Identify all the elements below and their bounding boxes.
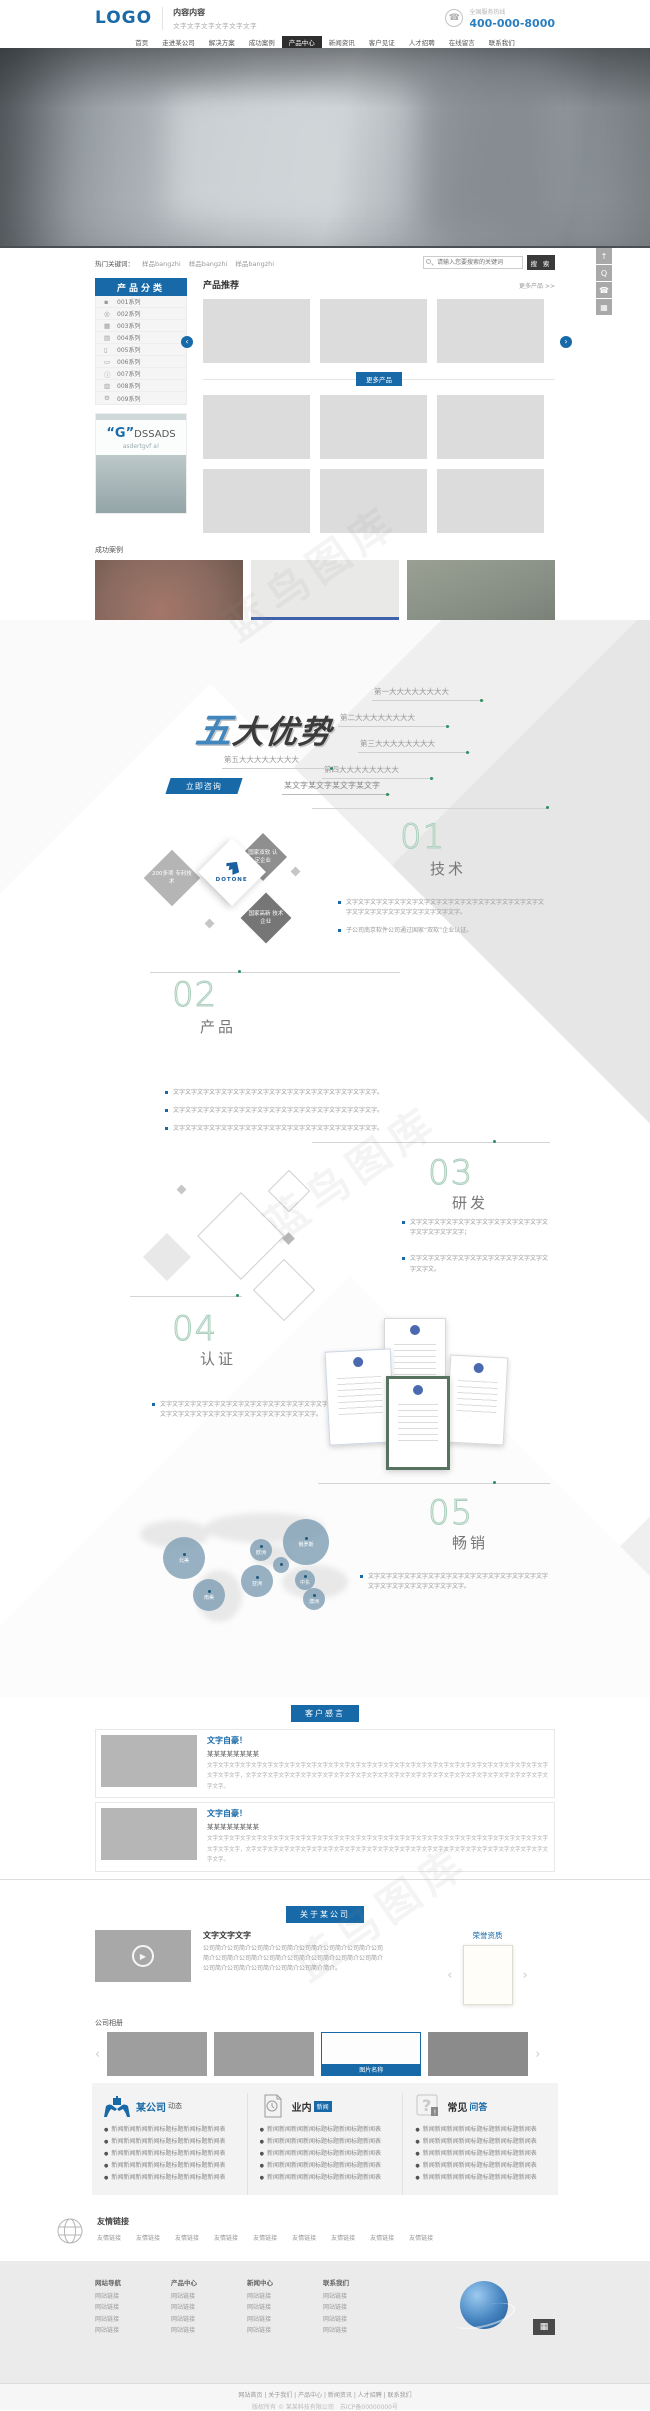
news-column-title: 某公司 [136,2099,166,2114]
green-dot [493,1481,496,1484]
category-icon: ⚙ [104,394,113,402]
region-bubble: 俄罗斯 [283,1519,329,1565]
section-bullet: 文字文字文字文字文字文字文字文字文字文字文字文字文字文字文字文字文字文字文字文字… [338,898,546,918]
product-image[interactable] [437,299,544,363]
search-input[interactable] [423,256,523,269]
region-label: 俄罗斯 [298,1541,313,1548]
certificate-image [386,1376,450,1470]
section-bullet: 文字文字文字文字文字文字文字文字文字文字文字文字文字文字文字文字文字。 [165,1088,410,1098]
news-list-item[interactable]: ●新闻新闻新闻新闻标题标题新闻标题新闻表 [104,2148,235,2160]
products-section: 热门关键词： 样品bangzhi样品bangzhi样品bangzhi 搜 索 产… [0,248,650,620]
news-list-item[interactable]: ●新闻新闻新闻新闻标题标题新闻标题新闻表 [415,2160,546,2172]
friendly-link[interactable]: 友情链接 [136,2233,160,2242]
friendly-link[interactable]: 友情链接 [175,2233,199,2242]
footer-link[interactable]: 网站链接 [95,2302,155,2313]
footer-nav-column: 联系我们 网站链接网站链接网站链接网站链接 [323,2277,383,2337]
news-list-item[interactable]: ●新闻新闻新闻新闻标题标题新闻标题新闻表 [415,2172,546,2184]
footer-column-heading: 网站导航 [95,2277,155,2287]
cases-title: 成功案例 [95,545,555,555]
qq-button[interactable]: Q [596,265,612,281]
category-icon: ▤ [104,334,113,342]
header-slogan: 内容内容 文字文字文字文字文字文字 [162,7,257,30]
nav-item[interactable]: 产品中心 [282,36,322,48]
advantage-item: 第四大大大大大大大大 [322,764,434,779]
carousel-prev-button[interactable]: ‹ [181,336,193,348]
bubble-dot [304,1575,307,1578]
nav-item[interactable]: 成功案例 [242,36,282,48]
footer-link[interactable]: 网站链接 [171,2314,231,2325]
section-title: 畅销 [452,1532,488,1553]
testimonial-card[interactable]: 文字自豪！ 某某某某某某某某 文字文字文字文字文字文字文字文字文字文字文字文字文… [95,1729,555,1798]
section-number: 01 [400,820,445,854]
product-image[interactable] [320,299,427,363]
testimonial-title: 文字自豪！ [207,1808,549,1819]
hotline-number: 400-000-8000 [469,17,555,30]
category-label: 002系列 [117,309,140,318]
friendly-links-title: 友情链接 [97,2216,433,2227]
friendly-link[interactable]: 友情链接 [331,2233,355,2242]
footer-link[interactable]: 网站链接 [171,2325,231,2336]
news-list-item[interactable]: ●新闻新闻新闻新闻标题标题新闻标题新闻表 [260,2136,391,2148]
footer-link[interactable]: 网站链接 [247,2314,307,2325]
bottom-bar: 网站首页 | 关于我们 | 产品中心 | 新闻资讯 | 人才招聘 | 联系我们 … [0,2383,650,2410]
advantage-item: 第二大大大大大大大大 [338,712,450,727]
region-bubble: 亚洲 [241,1565,273,1597]
play-icon: ▶ [132,1945,154,1967]
section-bullet: 文字文字文字文字文字文字文字文字文字文字文字文字文字文字文字文字文字。 [165,1106,410,1116]
qrcode-button[interactable]: ▦ [596,299,612,315]
advantage-note: 某文字某文字某文字某文字 [282,780,390,795]
product-image[interactable] [320,469,427,533]
honor-prev-button[interactable]: ‹ [447,1968,452,1983]
footer-nav-column: 新闻中心 网站链接网站链接网站链接网站链接 [247,2277,307,2337]
friendly-link[interactable]: 友情链接 [214,2233,238,2242]
green-dot [236,1294,239,1297]
testimonial-body: 文字文字文字文字文字文字文字文字文字文字文字文字文字文字文字文字文字文字文字文字… [207,1834,549,1865]
globe-icon [55,2216,85,2246]
nav-item[interactable]: 走进某公司 [155,36,202,48]
consult-now-button[interactable]: 立即咨询 [165,778,242,794]
about-section: 关于某公司 ▶ 文字文字文字 公司简介公司简介公司简介公司简介公司简介公司简介公… [0,1906,650,2014]
section-bullet: 文字文字文字文字文字文字文字文字文字文字文字文字文字文字文字文字文字。 [165,1124,410,1134]
product-image[interactable] [203,395,310,459]
footer-link[interactable]: 网站链接 [323,2314,383,2325]
news-section: 某公司 动态 ●新闻新闻新闻新闻标题标题新闻标题新闻表●新闻新闻新闻新闻标题标题… [0,2083,650,2204]
banner-blur-shape [420,63,550,233]
category-label: 001系列 [117,297,140,306]
bubble-dot [183,1553,186,1556]
album-thumbnail[interactable] [428,2032,528,2076]
section-title: 产品 [200,1016,236,1037]
nav-item[interactable]: 客户见证 [362,36,402,48]
certificate-image [325,1348,396,1445]
hotline-label: 全国服务热线 [469,7,555,16]
bubble-dot [280,1563,283,1566]
nav-item[interactable]: 解决方案 [202,36,242,48]
carousel-next-button[interactable]: › [560,336,572,348]
product-image[interactable] [437,469,544,533]
footer-link[interactable]: 网站链接 [323,2302,383,2313]
footer-link[interactable]: 网站链接 [171,2302,231,2313]
hands-gift-icon [104,2093,130,2119]
section-title: 认证 [200,1348,236,1369]
banner-blur-shape [170,98,340,218]
green-dot [238,970,241,973]
footer-nav-column: 产品中心 网站链接网站链接网站链接网站链接 [171,2277,231,2337]
qr-code-icon[interactable]: ▦ [533,2319,555,2335]
section-number: 03 [428,1156,473,1190]
nav-item[interactable]: 在线留言 [442,36,482,48]
footer-nav-column: 网站导航 网站链接网站链接网站链接网站链接 [95,2277,155,2337]
keyword-link[interactable]: 样品bangzhi [142,260,181,268]
about-tab-button[interactable]: 关于某公司 [286,1906,364,1923]
news-column-title: 业内 [292,2099,312,2114]
testimonial-body: 文字文字文字文字文字文字文字文字文字文字文字文字文字文字文字文字文字文字文字文字… [207,1761,549,1792]
document-clock-icon [260,2093,286,2119]
search-button[interactable]: 搜 索 [527,255,555,270]
friendly-links-section: 友情链接 友情链接友情链接友情链接友情链接友情链接友情链接友情链接友情链接友情链… [0,2204,650,2261]
hotline-block: ☎ 全国服务热线 400-000-8000 [445,7,555,30]
search-icon [426,259,431,264]
section-divider [150,972,400,973]
green-dot [546,806,549,809]
news-column-subtitle: 问答 [469,2100,487,2113]
sidebar-category-item[interactable]: ▤ 004系列 [96,332,186,344]
testimonial-image [101,1735,197,1787]
product-image[interactable] [203,299,310,363]
footer-link[interactable]: 网站链接 [95,2291,155,2302]
about-text: 公司简介公司简介公司简介公司简介公司简介公司简介公司简介公司简介公司简介公司简介… [203,1944,388,1974]
section-number: 02 [172,978,217,1012]
phone-button[interactable]: ☎ [596,282,612,298]
album-thumbnail[interactable] [107,2032,207,2076]
category-icon: ⓘ [104,369,113,379]
footer-column-heading: 产品中心 [171,2277,231,2287]
advantage-item: 第五大大大大大大大大 [222,754,334,769]
phone-icon: ☎ [445,9,463,27]
region-bubble: 北美 [163,1537,205,1579]
product-image[interactable] [203,469,310,533]
region-label: 亚洲 [252,1580,262,1587]
hot-keywords-label: 热门关键词： [95,258,134,268]
footer-link[interactable]: 网站链接 [247,2325,307,2336]
news-list-item[interactable]: ●新闻新闻新闻新闻标题标题新闻标题新闻表 [260,2160,391,2172]
bubble-dot [260,1545,263,1548]
testimonial-subtitle: 某某某某某某某某 [207,1821,549,1831]
category-label: 006系列 [117,357,140,366]
friendly-link[interactable]: 友情链接 [409,2233,433,2242]
news-list-item[interactable]: ●新闻新闻新闻新闻标题标题新闻标题新闻表 [260,2124,391,2136]
sidebar-category-item[interactable]: ▪ 001系列 [96,296,186,308]
sidebar-category-item[interactable]: ▥ 008系列 [96,380,186,392]
news-column-subtitle: 动态 [168,2101,182,2111]
category-icon: ◎ [104,310,113,318]
category-label: 009系列 [117,394,140,403]
sidebar-category-item[interactable]: ◎ 002系列 [96,308,186,320]
site-footer: 网站导航 网站链接网站链接网站链接网站链接 产品中心 网站链接网站链接网站链接网… [0,2261,650,2383]
faq-column: ? ! 常见 问答 ●新闻新闻新闻新闻标题标题新闻标题新闻表●新闻新闻新闻新闻标… [402,2093,558,2195]
keyword-link[interactable]: 样品bangzhi [235,260,274,268]
hero-banner[interactable] [0,48,650,248]
news-list-item[interactable]: ●新闻新闻新闻新闻标题标题新闻标题新闻表 [260,2148,391,2160]
product-image[interactable] [320,395,427,459]
footer-link[interactable]: 网站链接 [95,2325,155,2336]
friendly-link[interactable]: 友情链接 [370,2233,394,2242]
nav-item[interactable]: 人才招聘 [402,36,442,48]
album-thumbnail-selected[interactable]: 图片名称 [321,2032,421,2076]
section-divider [312,808,548,809]
honor-next-button[interactable]: › [523,1968,528,1983]
section-separator [0,1879,650,1880]
album-section: 公司相册 ‹ 图片名称 › [0,2014,650,2078]
region-bubble [273,1557,289,1573]
advantage-item: 第三大大大大大大大大 [358,738,470,753]
sidebar-category-item[interactable]: ▦ 003系列 [96,320,186,332]
news-list-item[interactable]: ●新闻新闻新闻新闻标题标题新闻标题新闻表 [104,2124,235,2136]
section-bullet: 文字文字文字文字文字文字文字文字文字文字文字文字文字文字文字文字文字文字文字文字… [360,1572,550,1592]
category-label: 003系列 [117,321,140,330]
category-label: 008系列 [117,381,140,390]
album-next-button[interactable]: › [535,2047,540,2062]
region-bubble: 南美 [193,1579,225,1611]
friendly-link[interactable]: 友情链接 [292,2233,316,2242]
globe-graphic [460,2281,508,2329]
honor-label[interactable]: 荣誉资质 [420,1930,555,1941]
bubble-dot [305,1537,308,1540]
company-video[interactable]: ▶ [95,1930,191,1982]
sidebar-ad-banner[interactable]: “G”DSSADS asdertgvf a! [95,413,187,514]
sidebar-category-item[interactable]: ⚙ 009系列 [96,392,186,404]
testimonials-section: 客户感言 文字自豪！ 某某某某某某某某 文字文字文字文字文字文字文字文字文字文字… [0,1705,650,1898]
sidebar-category-item[interactable]: ⓘ 007系列 [96,368,186,380]
question-icon: ? ! [415,2093,441,2119]
section-bullet: 文字文字文字文字文字文字文字文字文字文字文字文字文字文字文字文字； [402,1218,552,1238]
section-divider [130,1296,242,1297]
about-heading: 文字文字文字 [203,1930,388,1941]
bubble-dot [256,1576,259,1579]
section-title: 技术 [430,858,466,879]
footer-link[interactable]: 网站链接 [323,2325,383,2336]
category-label: 005系列 [117,345,140,354]
section-bullet: 文字文字文字文字文字文字文字文字文字文字文字文字文字文字文字文字文字文字文字文字… [152,1400,332,1420]
region-bubble: 欧洲 [250,1539,272,1561]
keyword-link[interactable]: 样品bangzhi [189,260,228,268]
section-divider [318,1483,550,1484]
footer-link[interactable]: 网站链接 [247,2302,307,2313]
more-products-button[interactable]: 更多产品 [356,372,402,386]
album-title: 公司相册 [95,2014,555,2032]
region-bubble: 中东 [295,1570,315,1590]
ad-image [96,455,186,513]
nav-item[interactable]: 新闻资讯 [322,36,362,48]
sidebar-category-item[interactable]: ▭ 006系列 [96,356,186,368]
green-dot [493,1140,496,1143]
nav-item[interactable]: 联系我们 [482,36,522,48]
region-label: 南美 [204,1594,214,1601]
main-nav: 首页走进某公司解决方案成功案例产品中心新闻资讯客户见证人才招聘在线留言联系我们 [0,36,650,48]
category-icon: ▪ [104,298,113,306]
news-list-item[interactable]: ●新闻新闻新闻新闻标题标题新闻标题新闻表 [260,2172,391,2184]
five-advantages-logo: 五大优势 [193,702,334,754]
region-label: 澳洲 [309,1598,319,1605]
svg-text:?: ? [422,2096,431,2115]
footer-link[interactable]: 网站链接 [323,2291,383,2302]
testimonial-card[interactable]: 文字自豪！ 某某某某某某某某 文字文字文字文字文字文字文字文字文字文字文字文字文… [95,1802,555,1871]
footer-link[interactable]: 网站链接 [95,2314,155,2325]
footer-column-heading: 新闻中心 [247,2277,307,2287]
brand-logo-icon [225,862,240,875]
section-bullet: 子公司南京软件公司通过国家“双软”企业认证。 [338,926,546,936]
news-column-title: 常见 [447,2099,467,2114]
section-bullet: 文字文字文字文字文字文字文字文字文字文字文字文字文字文。 [402,1254,552,1274]
news-list-item[interactable]: ●新闻新闻新闻新闻标题标题新闻标题新闻表 [415,2148,546,2160]
section-number: 05 [428,1496,473,1530]
album-prev-button[interactable]: ‹ [95,2047,100,2062]
company-news-column: 某公司 动态 ●新闻新闻新闻新闻标题标题新闻标题新闻表●新闻新闻新闻新闻标题标题… [92,2093,247,2195]
album-thumbnail[interactable] [214,2032,314,2076]
news-list-item[interactable]: ●新闻新闻新闻新闻标题标题新闻标题新闻表 [104,2172,235,2184]
industry-news-column: 业内 新闻 ●新闻新闻新闻新闻标题标题新闻标题新闻表●新闻新闻新闻新闻标题标题新… [247,2093,403,2195]
nav-item[interactable]: 首页 [128,36,155,48]
products-title: 产品推荐 [203,278,239,291]
advantages-section: 五大优势 第一大大大大大大大大 第二大大大大大大大大 第三大大大大大大大大 第四… [0,620,650,1697]
section-divider [312,1142,550,1143]
slogan-subtitle: 文字文字文字文字文字文字 [173,20,257,30]
testimonial-title: 文字自豪！ [207,1735,549,1746]
news-list-item[interactable]: ●新闻新闻新闻新闻标题标题新闻标题新闻表 [415,2124,546,2136]
category-sidebar-title: 产品分类 [95,278,187,296]
floating-toolbar: ↑ Q ☎ ▦ [596,248,612,316]
category-icon: ▦ [104,322,113,330]
region-label: 欧洲 [256,1549,266,1556]
ad-brand-name: DSSADS [134,429,175,440]
product-category-sidebar: 产品分类 ▪ 001系列 ◎ 002系列 ▦ 003系列 ▤ 004系列 [95,278,187,533]
category-label: 007系列 [117,369,140,378]
more-products-link[interactable]: 更多产品 >> [519,281,555,290]
news-column-subtitle: 新闻 [314,2101,332,2112]
album-caption: 图片名称 [322,2064,420,2075]
ad-subtext: asdertgvf a! [98,443,184,450]
friendly-link[interactable]: 友情链接 [97,2233,121,2242]
category-icon: ▥ [104,382,113,390]
bubble-dot [313,1594,316,1597]
footer-column-heading: 联系我们 [323,2277,383,2287]
section-title: 研发 [452,1192,488,1213]
svg-text:!: ! [434,2109,437,2117]
region-label: 北美 [179,1557,189,1564]
category-label: 004系列 [117,333,140,342]
back-to-top-button[interactable]: ↑ [596,248,612,264]
copyright-text: 版权所有 © 某某科技有限公司 苏ICP备00000000号 [0,2402,650,2411]
ad-brand-g: “G” [106,426,134,441]
news-list-item[interactable]: ●新闻新闻新闻新闻标题标题新闻标题新闻表 [104,2160,235,2172]
friendly-link[interactable]: 友情链接 [253,2233,277,2242]
section-number: 04 [172,1312,217,1346]
bottom-links[interactable]: 网站首页 | 关于我们 | 产品中心 | 新闻资讯 | 人才招聘 | 联系我们 [0,2384,650,2399]
news-list-item[interactable]: ●新闻新闻新闻新闻标题标题新闻标题新闻表 [415,2136,546,2148]
footer-link[interactable]: 网站链接 [171,2291,231,2302]
footer-link[interactable]: 网站链接 [247,2291,307,2302]
certificate-image [446,1355,509,1446]
testimonial-subtitle: 某某某某某某某某 [207,1748,549,1758]
slogan-title: 内容内容 [173,7,257,18]
category-icon: ▭ [104,358,113,366]
product-image[interactable] [437,395,544,459]
category-icon: ▯ [104,346,113,354]
brand-name: DOTONE [216,877,248,883]
region-bubble: 澳洲 [303,1588,325,1610]
testimonial-image [101,1808,197,1860]
site-logo[interactable]: LOGO [95,8,152,28]
site-header: LOGO 内容内容 文字文字文字文字文字文字 ☎ 全国服务热线 400-000-… [0,0,650,36]
testimonials-tab-button[interactable]: 客户感言 [291,1705,359,1722]
advantage-item: 第一大大大大大大大大 [372,686,484,701]
honor-certificate-image[interactable] [463,1945,513,2005]
bubble-dot [208,1590,211,1593]
news-list-item[interactable]: ●新闻新闻新闻新闻标题标题新闻标题新闻表 [104,2136,235,2148]
sidebar-category-item[interactable]: ▯ 005系列 [96,344,186,356]
region-label: 中东 [300,1579,310,1586]
